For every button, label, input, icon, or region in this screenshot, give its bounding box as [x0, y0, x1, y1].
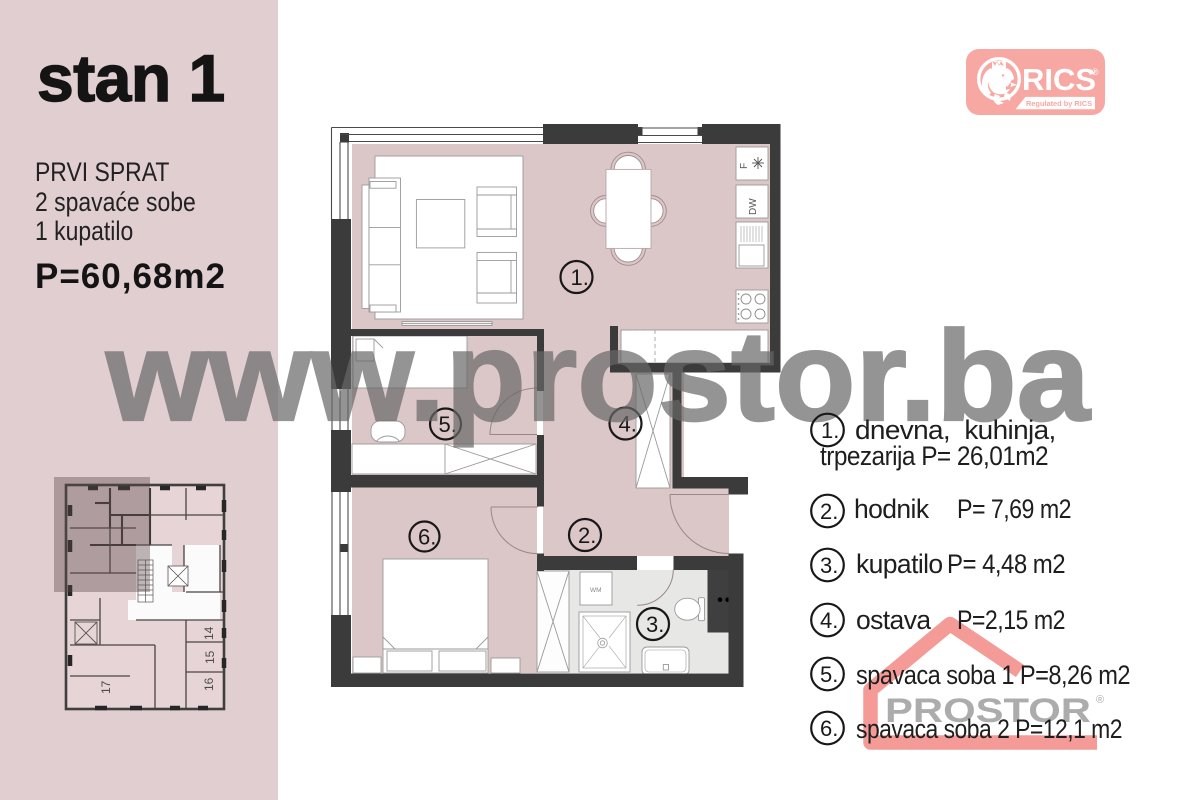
- svg-text:1.: 1.: [821, 418, 839, 443]
- svg-text:2.: 2.: [820, 499, 838, 524]
- svg-text:3.: 3.: [820, 553, 838, 578]
- svg-text:6.: 6.: [820, 716, 838, 741]
- svg-text:5.: 5.: [820, 662, 838, 687]
- svg-text:4.: 4.: [820, 608, 838, 633]
